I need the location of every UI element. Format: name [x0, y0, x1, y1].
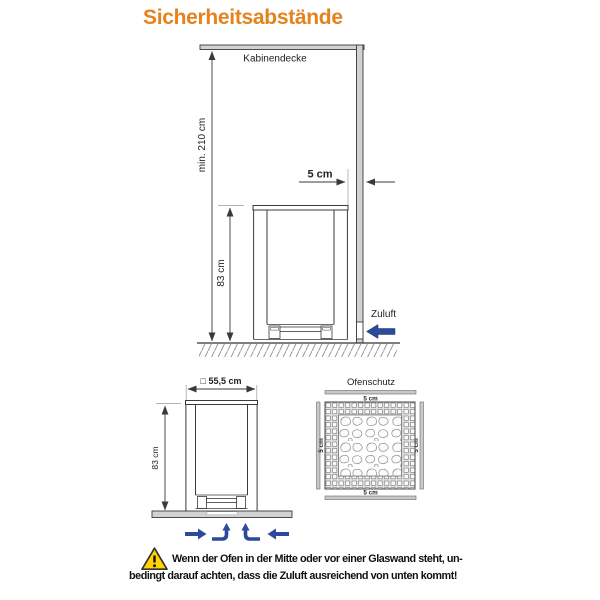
- base-plate-slot: [207, 512, 237, 515]
- floor-plate-diagram: Ofenschutz 5 cm 5 cm 5 cm 5 cm: [317, 377, 424, 500]
- diagram-canvas: Kabinendecke min. 210 cm 5 cm: [0, 0, 600, 600]
- ceiling-bar: [200, 45, 364, 50]
- margin-top-label: 5 cm: [363, 396, 378, 403]
- main-elevation-diagram: Kabinendecke min. 210 cm 5 cm: [197, 45, 400, 357]
- ceiling-label: Kabinendecke: [243, 54, 307, 65]
- safety-distances-page: Sicherheitsabstände: [0, 0, 600, 600]
- wall-air-vent: [357, 322, 364, 339]
- air-inlet-arrow-icon: [367, 325, 396, 339]
- front-view-diagram: □ 55,5 cm 83 cm: [150, 376, 292, 540]
- air-inlet-label: Zuluft: [371, 309, 396, 320]
- margin-bottom-label: 5 cm: [363, 490, 378, 497]
- wall: [357, 45, 364, 343]
- page-title: Sicherheitsabstände: [143, 6, 343, 30]
- floor-plate-title: Ofenschutz: [347, 377, 395, 388]
- heater-front-view: [186, 401, 258, 512]
- margin-left-label: 5 cm: [318, 438, 325, 453]
- min-height-label: min. 210 cm: [197, 118, 208, 172]
- airflow-arrows-icon: [185, 523, 289, 540]
- floor-hatching: [199, 344, 397, 357]
- front-height-label: 83 cm: [150, 446, 160, 469]
- wall-distance-label: 5 cm: [307, 169, 332, 181]
- stone-pattern: [339, 415, 402, 476]
- front-width-label: □ 55,5 cm: [201, 376, 242, 386]
- heater-height-label: 83 cm: [216, 259, 227, 286]
- heater-side-view: [253, 206, 348, 340]
